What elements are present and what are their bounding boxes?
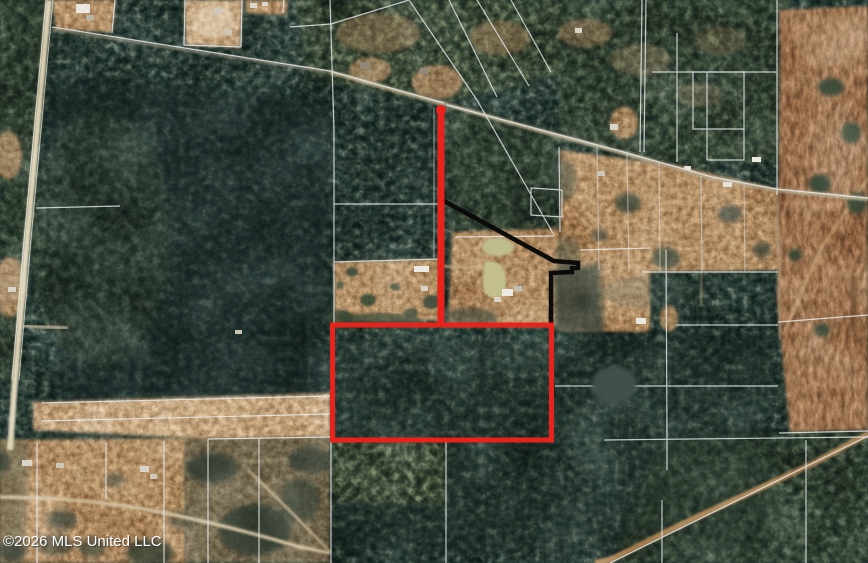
svg-text:©2026 MLS United LLC: ©2026 MLS United LLC [3,533,162,550]
